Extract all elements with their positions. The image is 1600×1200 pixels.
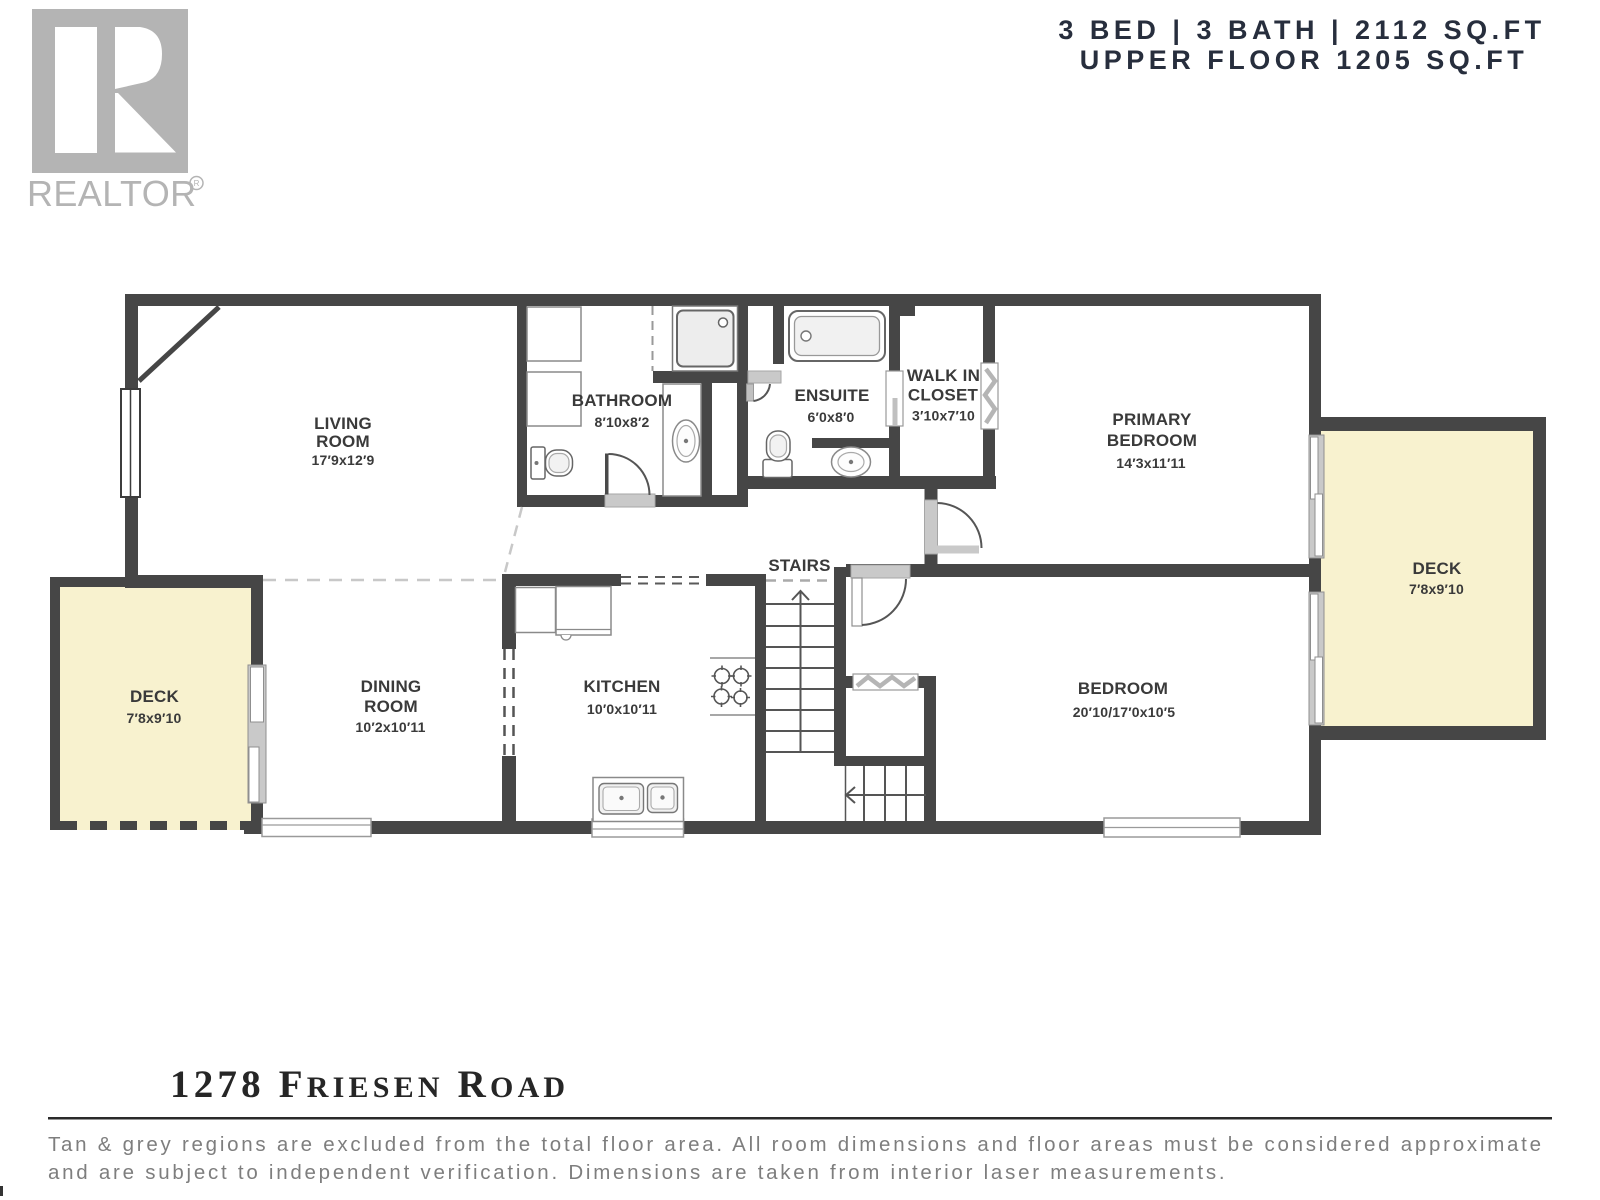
svg-text:STAIRS: STAIRS xyxy=(768,556,830,575)
svg-text:3′10x7′10: 3′10x7′10 xyxy=(912,408,975,424)
svg-text:3 BED | 3 BATH | 2112 SQ.FT: 3 BED | 3 BATH | 2112 SQ.FT xyxy=(1058,15,1545,45)
svg-text:KITCHEN: KITCHEN xyxy=(584,677,661,696)
svg-text:WALK IN: WALK IN xyxy=(907,366,980,385)
svg-text:10′2x10′11: 10′2x10′11 xyxy=(355,719,425,735)
svg-text:DECK: DECK xyxy=(1413,559,1462,578)
svg-text:6′0x8′0: 6′0x8′0 xyxy=(807,409,854,425)
svg-text:CLOSET: CLOSET xyxy=(908,386,979,405)
svg-text:ROOM: ROOM xyxy=(316,432,370,451)
svg-text:REALTOR: REALTOR xyxy=(27,173,197,214)
svg-text:Tan & grey regions are exclude: Tan & grey regions are excluded from the… xyxy=(48,1133,1544,1156)
svg-text:ENSUITE: ENSUITE xyxy=(794,386,869,405)
svg-text:BEDROOM: BEDROOM xyxy=(1107,431,1197,450)
svg-text:LIVING: LIVING xyxy=(314,414,372,433)
svg-text:17′9x12′9: 17′9x12′9 xyxy=(311,452,374,468)
svg-text:BATHROOM: BATHROOM xyxy=(572,391,672,410)
svg-text:BEDROOM: BEDROOM xyxy=(1078,679,1168,698)
svg-text:R: R xyxy=(194,179,200,188)
svg-text:and are subject to independent: and are subject to independent verificat… xyxy=(48,1161,1227,1184)
svg-text:UPPER FLOOR 1205 SQ.FT: UPPER FLOOR 1205 SQ.FT xyxy=(1080,45,1529,75)
svg-text:20′10/17′0x10′5: 20′10/17′0x10′5 xyxy=(1073,704,1176,720)
svg-text:DECK: DECK xyxy=(130,687,179,706)
svg-text:8′10x8′2: 8′10x8′2 xyxy=(594,414,649,430)
svg-text:DINING: DINING xyxy=(361,677,422,696)
svg-text:10′0x10′11: 10′0x10′11 xyxy=(587,701,657,717)
svg-text:14′3x11′11: 14′3x11′11 xyxy=(1116,455,1185,471)
svg-text:7′8x9′10: 7′8x9′10 xyxy=(1409,581,1464,597)
svg-text:7′8x9′10: 7′8x9′10 xyxy=(126,710,181,726)
svg-text:PRIMARY: PRIMARY xyxy=(1112,410,1192,429)
svg-text:ROOM: ROOM xyxy=(364,697,418,716)
